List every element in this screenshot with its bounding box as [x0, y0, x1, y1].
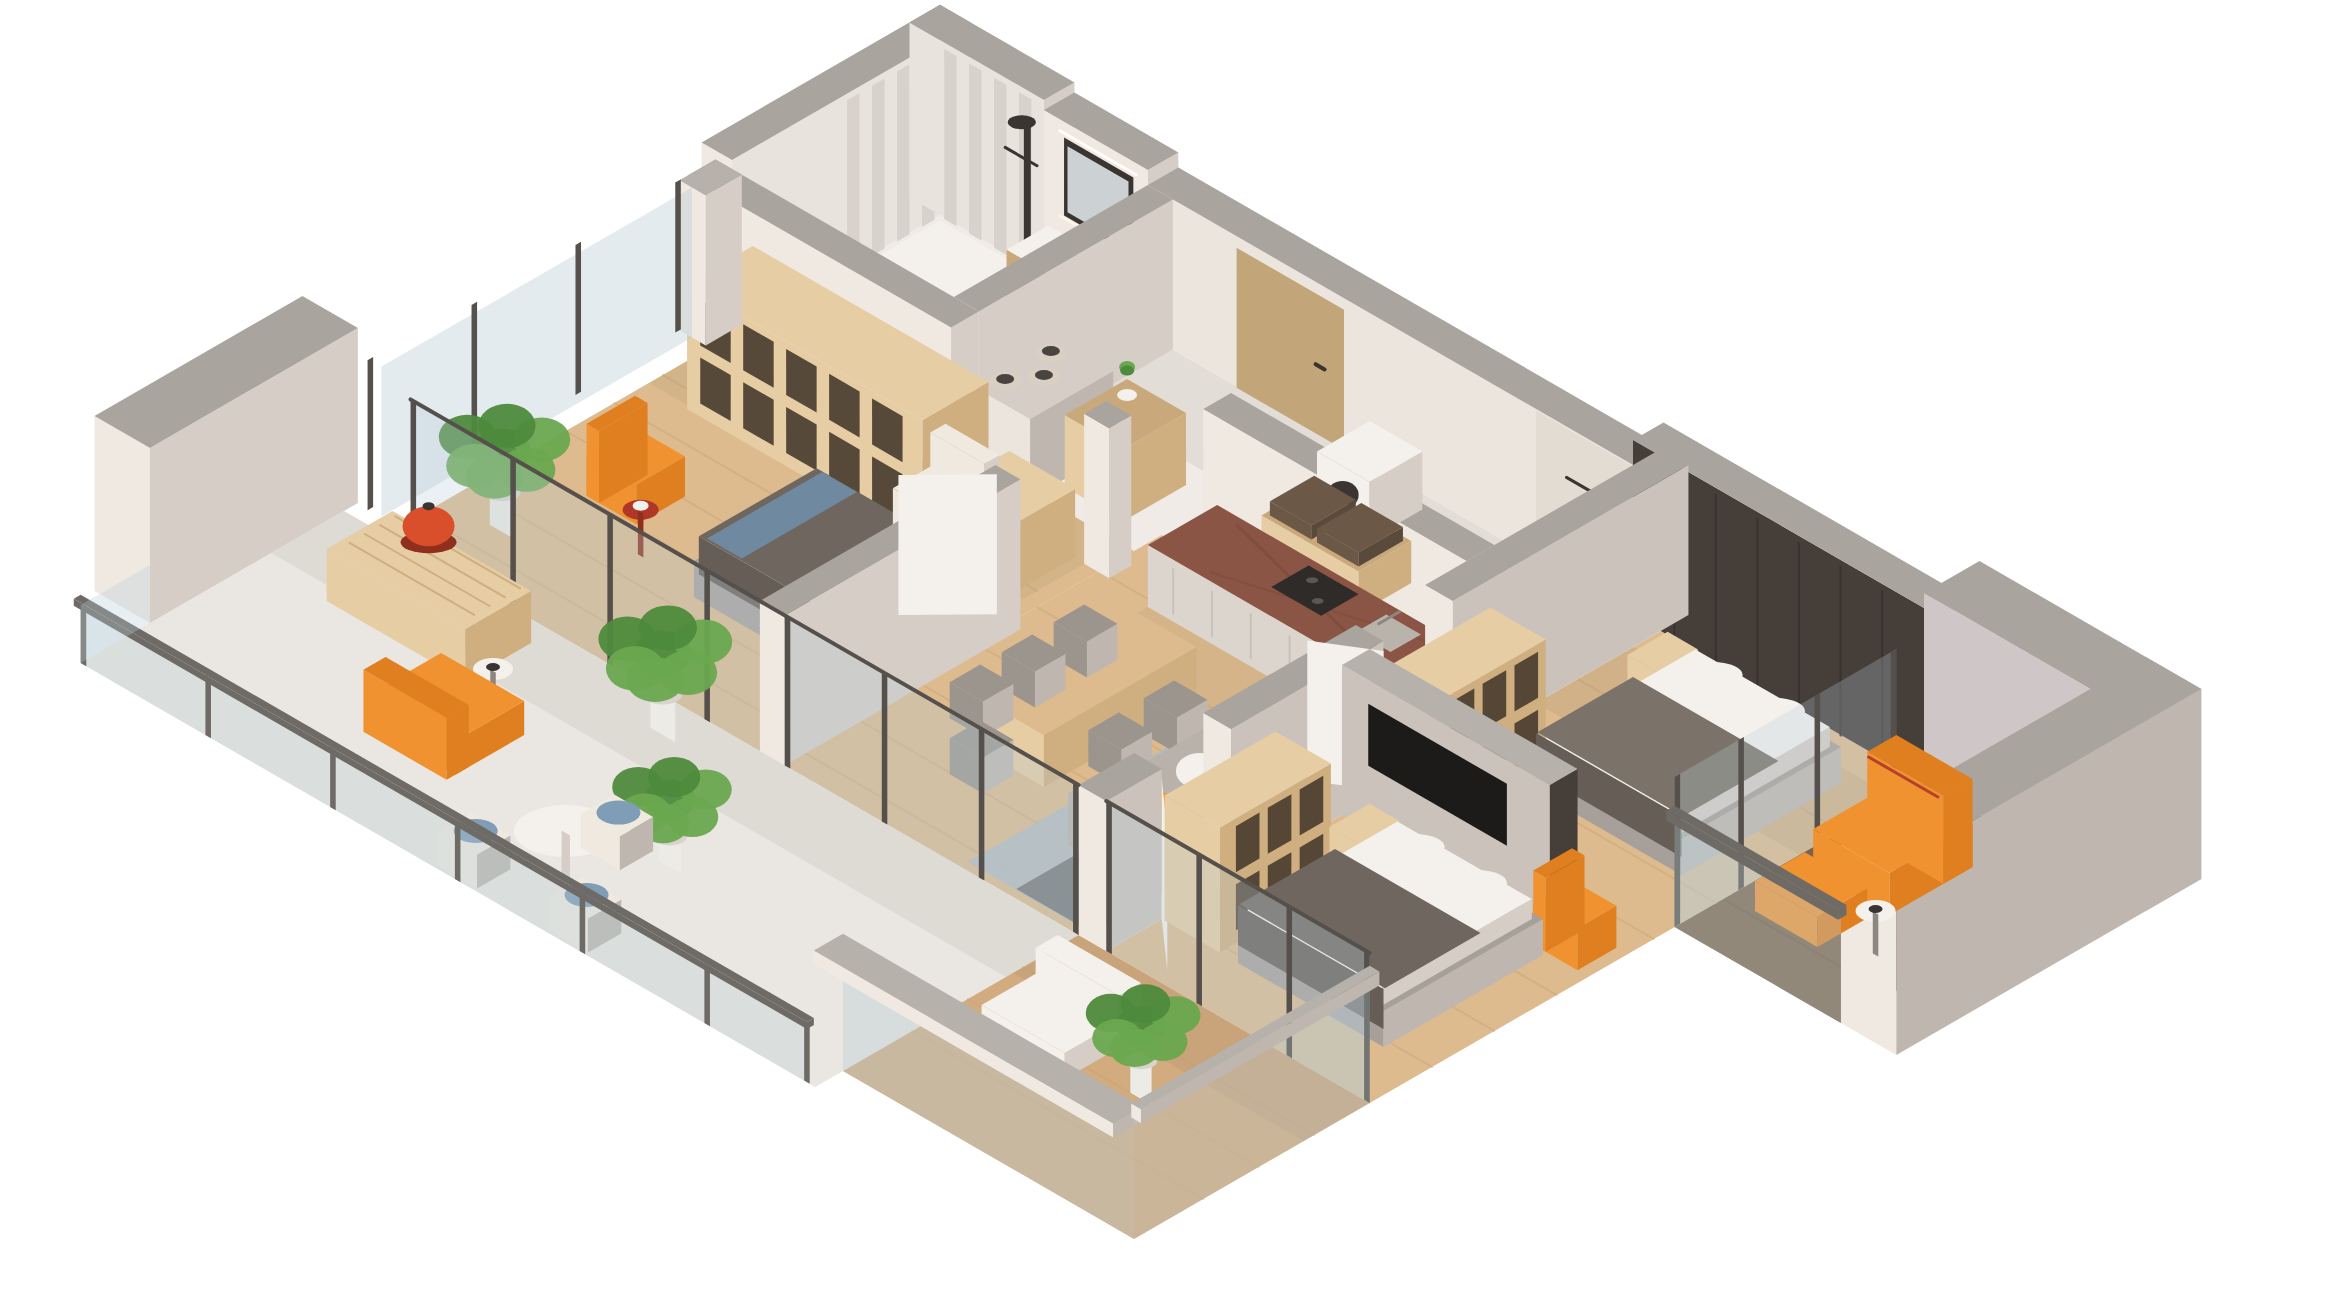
flower-vase — [1117, 389, 1137, 401]
plant-terrace-foliage — [626, 657, 684, 702]
slider-post — [1196, 853, 1202, 1006]
plant-terrace-foliage — [639, 605, 697, 650]
slider-post — [979, 727, 985, 880]
cabinet-panel-line — [1172, 568, 1174, 615]
glass-door-post — [1815, 693, 1821, 846]
slider-post — [785, 615, 791, 768]
slider-post — [1073, 782, 1079, 935]
dark-wall-stripe — [1798, 542, 1800, 713]
window-mullion — [368, 357, 374, 510]
pattern-tile-stripe — [944, 49, 956, 226]
wall-bedrooms-partition — [1079, 785, 1107, 951]
cabinet-panel-line — [1250, 613, 1252, 660]
window-pier — [706, 175, 742, 346]
accent-chair-back — [587, 424, 599, 503]
plant-palm-foliage — [648, 757, 700, 797]
pattern-tile-stripe — [897, 64, 909, 241]
cabinet-panel-line — [1211, 590, 1213, 637]
slider-post — [882, 671, 888, 824]
floorplan-render — [0, 0, 2325, 1308]
balcony-table-leg — [1873, 911, 1879, 956]
bed3-pillow — [1385, 834, 1445, 860]
lounge-chair-back — [1943, 779, 1972, 884]
slider-post — [1106, 801, 1112, 954]
decor-pot-mouth — [1042, 346, 1060, 356]
bed2-pillow — [1683, 662, 1743, 688]
dark-wall-stripe — [1715, 494, 1717, 665]
dark-wall-stripe — [1756, 518, 1758, 689]
railing-post — [804, 1021, 810, 1084]
pattern-tile-stripe — [994, 78, 1006, 255]
cooktop-burner — [1306, 577, 1318, 583]
plant-balcony-foliage — [1120, 984, 1170, 1022]
wall-master-living — [760, 601, 785, 765]
wall-master-living — [1109, 415, 1131, 578]
terrace-lounge-back — [447, 705, 469, 780]
pattern-tile-stripe — [872, 79, 884, 256]
pattern-tile-stripe — [969, 63, 981, 240]
master-door-leaf — [898, 474, 996, 615]
side-table-decor — [633, 501, 649, 511]
shower-head — [1008, 115, 1036, 129]
terrace-table-decor — [486, 663, 500, 671]
window-mullion — [575, 242, 581, 395]
bed3-pillow — [1447, 870, 1507, 896]
flower-sprig — [1120, 366, 1134, 376]
wall-master-living — [1084, 414, 1109, 578]
grill-dome — [403, 506, 455, 546]
cooktop-burner — [1312, 598, 1324, 604]
chair-cushion-blue — [596, 801, 640, 825]
grill-knob — [423, 502, 435, 510]
decor-pot-mouth — [1035, 370, 1053, 380]
window-mullion — [675, 179, 681, 332]
floorplan-screenshot: 3D isometric apartment floor plan render — [0, 0, 2325, 1308]
balcony-table-decor — [1869, 905, 1883, 913]
plant-balcony-foliage — [1110, 1029, 1160, 1067]
decor-pot-mouth — [996, 374, 1014, 384]
